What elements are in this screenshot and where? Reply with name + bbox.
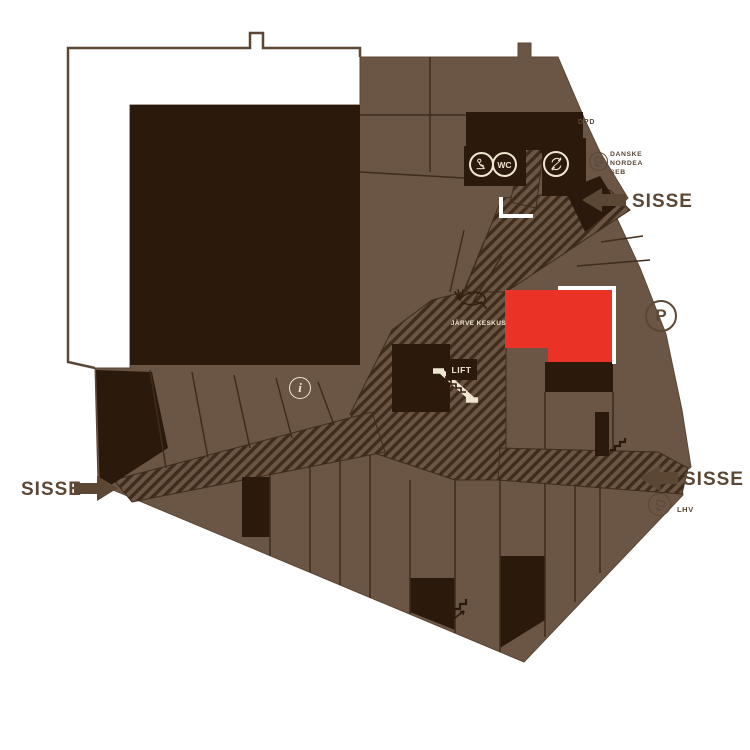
parking-label: P <box>655 306 666 326</box>
bank-label-seb: SEB <box>610 168 643 177</box>
atm-icon <box>589 152 608 171</box>
service-person-icon <box>469 152 494 177</box>
service-person-glyph <box>474 157 489 172</box>
store-block <box>242 477 270 537</box>
atm-glyph <box>592 155 605 168</box>
currency-exchange-glyph <box>548 156 564 172</box>
mall-floorplan: DPD DANSKE NORDEA SEB SISSE P JÄRVE KESK… <box>0 0 750 750</box>
dpd-label: DPD <box>578 119 595 126</box>
lift-label: LIFT <box>446 359 477 380</box>
store-block <box>466 112 540 150</box>
currency-exchange-icon <box>543 151 569 177</box>
wc-label: WC <box>497 160 511 170</box>
anchor-store-block <box>130 105 360 365</box>
wc-icon: WC <box>492 152 517 177</box>
entrance-label-bottom-right: SISSE <box>683 469 744 491</box>
escalator-block <box>392 344 450 412</box>
atm-icon <box>648 493 671 516</box>
store-block <box>545 362 613 392</box>
store-block <box>595 412 609 456</box>
lhv-label: LHV <box>677 505 694 514</box>
atm-glyph <box>653 498 667 512</box>
parking-icon: P <box>645 300 677 332</box>
lift-text: LIFT <box>452 365 472 375</box>
entrance-label-top-right: SISSE <box>632 191 693 213</box>
floorplan-svg <box>0 0 750 750</box>
info-letter: i <box>298 380 302 396</box>
bank-label-nordea: NORDEA <box>610 159 643 168</box>
bank-labels: DANSKE NORDEA SEB <box>610 150 643 177</box>
logo-label: JÄRVE KESKUS <box>436 320 521 327</box>
bank-label-danske: DANSKE <box>610 150 643 159</box>
entrance-label-left: SISSE <box>21 479 82 501</box>
info-icon: i <box>289 377 311 399</box>
